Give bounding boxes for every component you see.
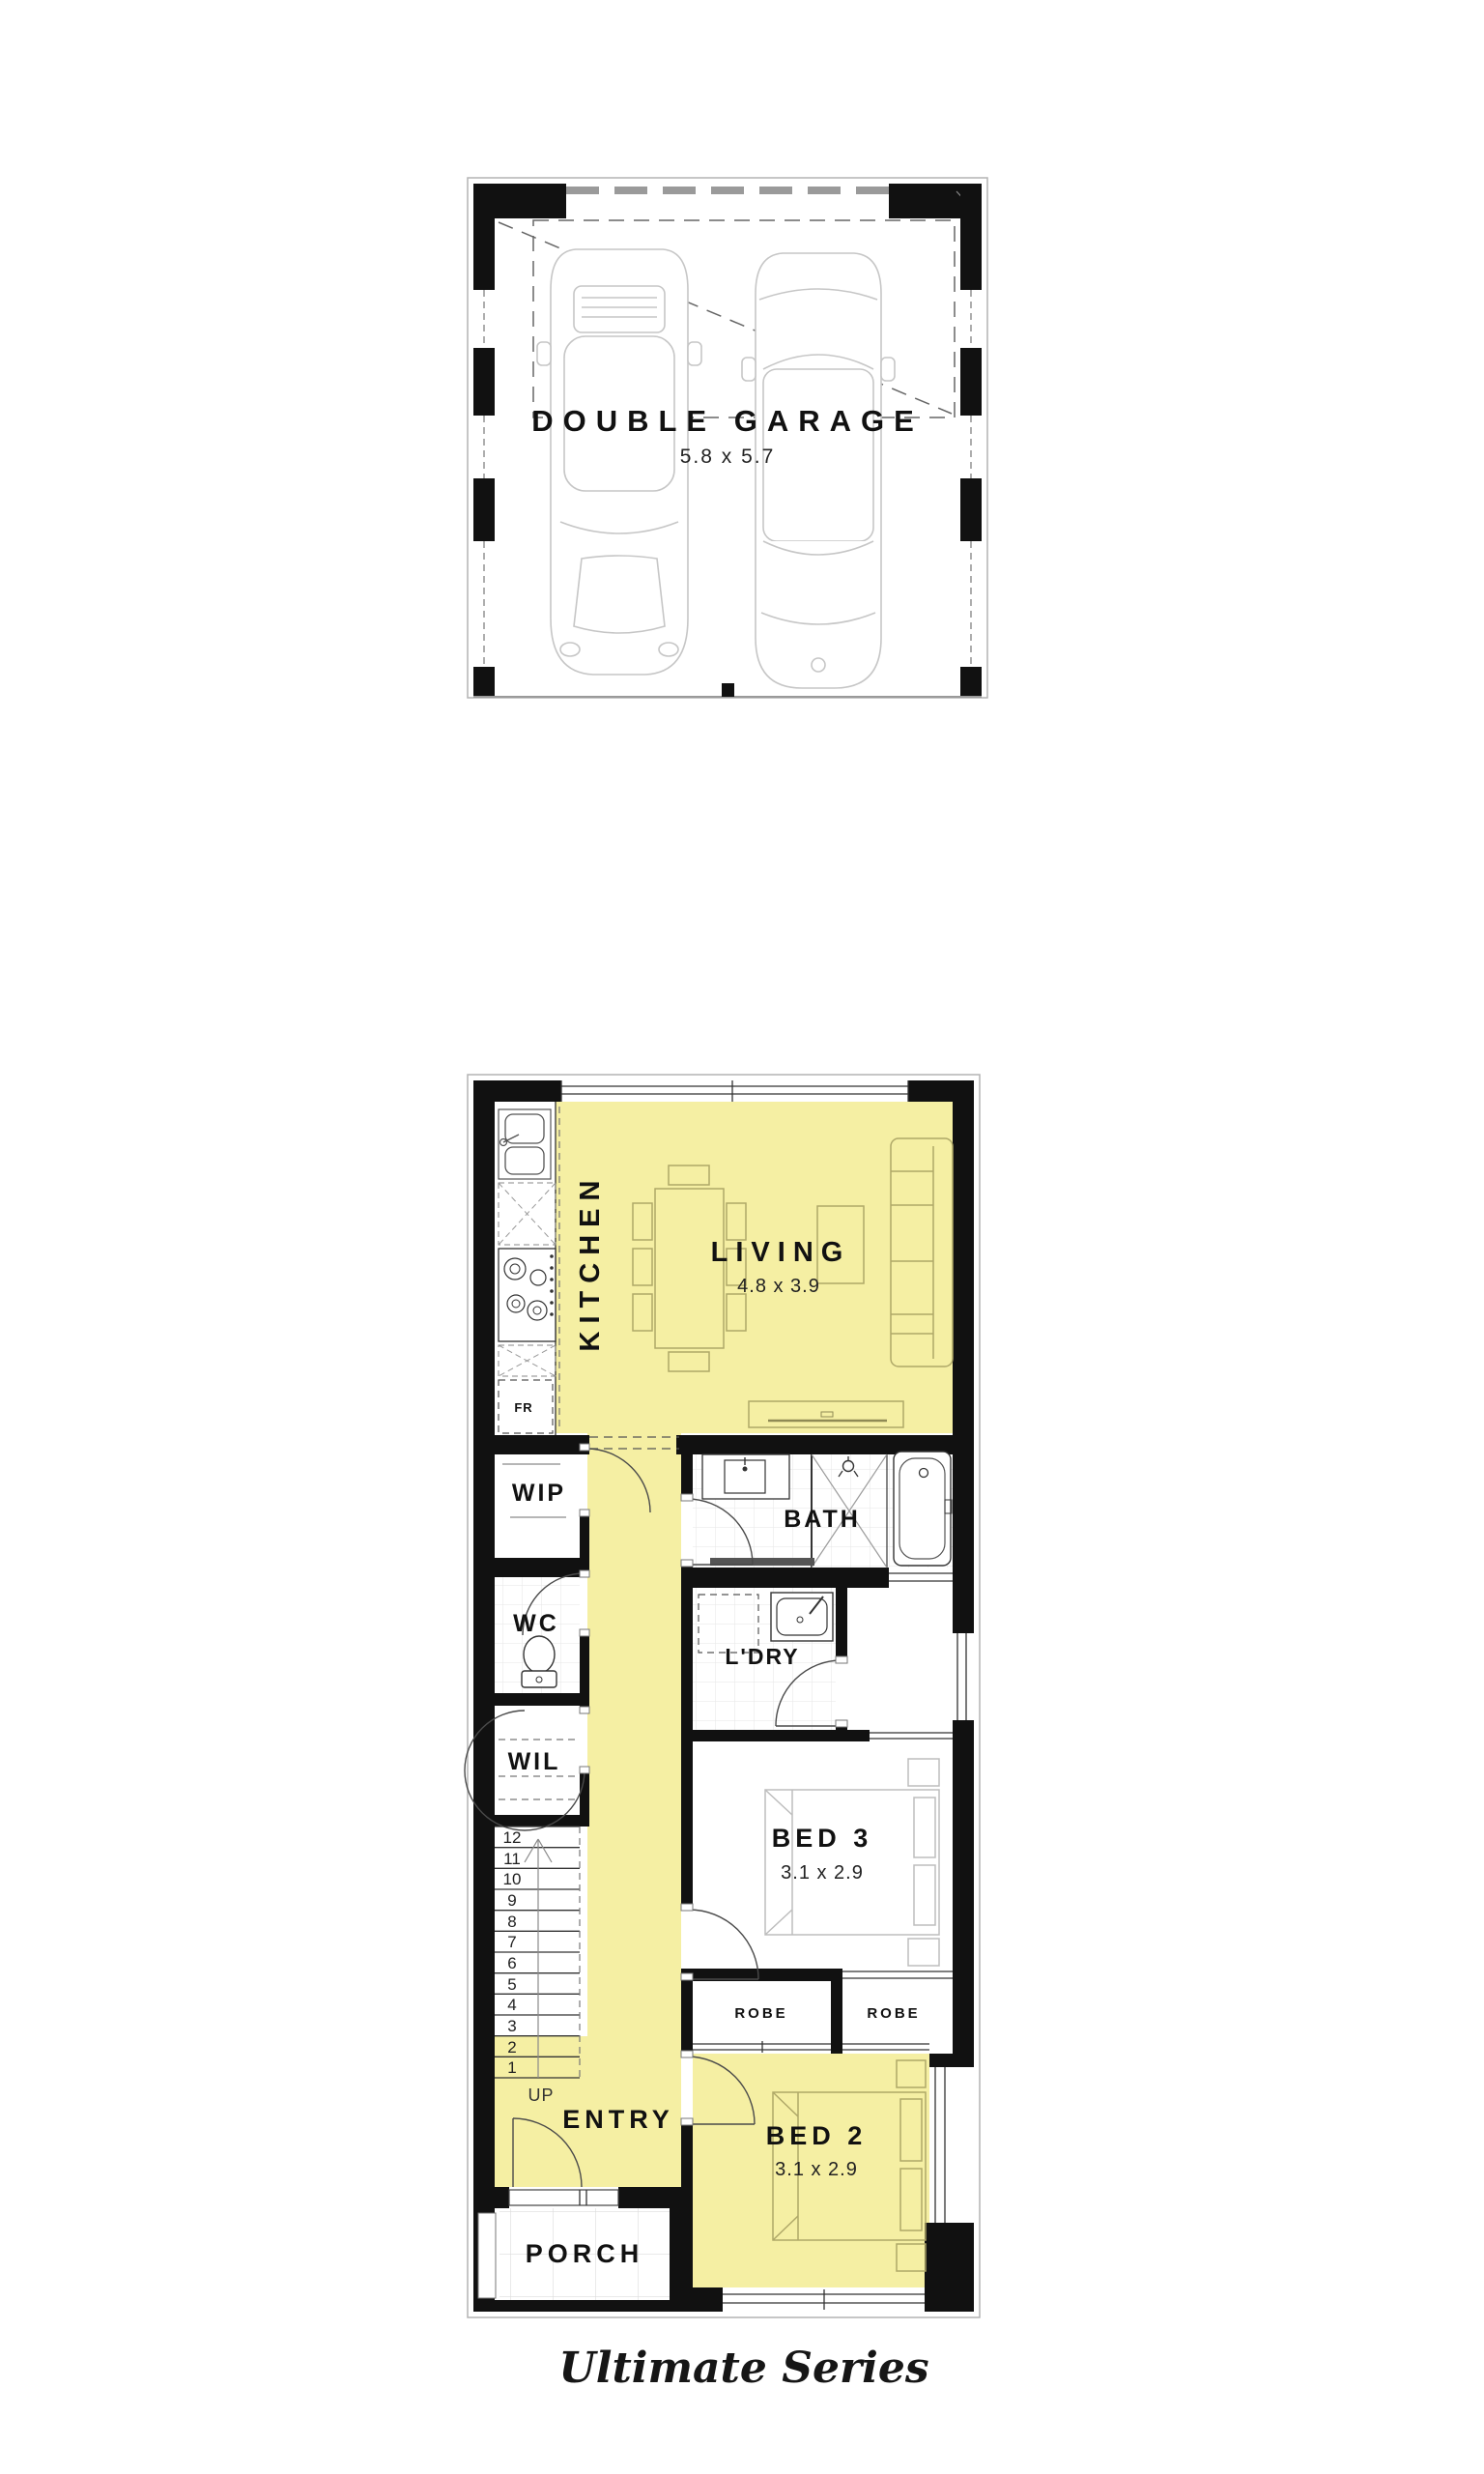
series-logo: Ultimate Series [558,2344,928,2393]
garage-bottom-stub [722,683,734,697]
svg-text:12: 12 [503,1828,522,1847]
robe-left-label: ROBE [734,2005,787,2022]
bed3-label: BED 3 [772,1824,873,1853]
garage-right-wall [960,184,982,698]
up-label: UP [528,2086,554,2105]
living-window [561,1080,908,1102]
floorplan-drawing: DOUBLE GARAGE 5.8 x 5.7 [0,0,1484,2474]
front-door-frame [509,2190,618,2205]
bed2-rear-window [723,2289,925,2310]
svg-text:7: 7 [507,1933,516,1951]
entry-label: ENTRY [562,2105,674,2134]
svg-text:1: 1 [507,2058,516,2077]
robe-right-label: ROBE [867,2005,920,2022]
svg-text:3: 3 [507,2017,516,2035]
floorplan-page: DOUBLE GARAGE 5.8 x 5.7 [0,0,1484,2474]
wil-label: WIL [508,1748,561,1775]
bed3-nook-window [953,1633,974,1720]
garage-label: DOUBLE GARAGE [531,404,924,438]
kitchen-label: KITCHEN [575,1173,606,1352]
garage-plan: DOUBLE GARAGE 5.8 x 5.7 [468,178,987,698]
robe-left-bottom-track [693,2041,831,2053]
fridge-label: FR [514,1400,532,1415]
bath-label: BATH [784,1506,861,1533]
wip-label: WIP [512,1480,566,1507]
svg-text:5: 5 [507,1975,516,1994]
living-label: LIVING [711,1237,851,1268]
bath-niche-window [889,1568,953,1588]
svg-text:6: 6 [507,1954,516,1972]
living-dims: 4.8 x 3.9 [737,1276,820,1297]
kitchen-bench: FR [495,1102,559,1435]
svg-text:4: 4 [507,1996,516,2014]
fridge-space: FR [499,1380,553,1433]
bed2-side-window [929,2067,953,2223]
vanity [702,1454,789,1499]
bed3-dims: 3.1 x 2.9 [781,1862,864,1884]
garage-left-wall [473,184,495,698]
bed2-dims: 3.1 x 2.9 [775,2159,858,2180]
ground-floor-plan: FR [465,1075,980,2317]
wc-label: WC [513,1610,559,1637]
porch-label: PORCH [526,2239,644,2268]
bed3-top-window [870,1730,953,1741]
bed2-label: BED 2 [766,2121,868,2150]
svg-text:2: 2 [507,2038,516,2057]
car-1 [537,249,701,675]
laundry-sink [771,1593,833,1641]
robe-right-bottom-track [842,2044,929,2050]
toilet [524,1636,555,1673]
svg-text:10: 10 [503,1870,522,1888]
svg-text:8: 8 [507,1913,516,1931]
robe-right-top-track [842,1971,953,1978]
garage-dims: 5.8 x 5.7 [680,446,776,468]
ldry-label: L'DRY [725,1644,799,1669]
bathtub [894,1452,952,1566]
porch-pillar [478,2213,496,2298]
svg-text:11: 11 [503,1850,521,1868]
cooktop [499,1249,556,1341]
car-2 [742,253,895,688]
garage-eave-outline [468,178,987,698]
svg-text:9: 9 [507,1891,516,1910]
